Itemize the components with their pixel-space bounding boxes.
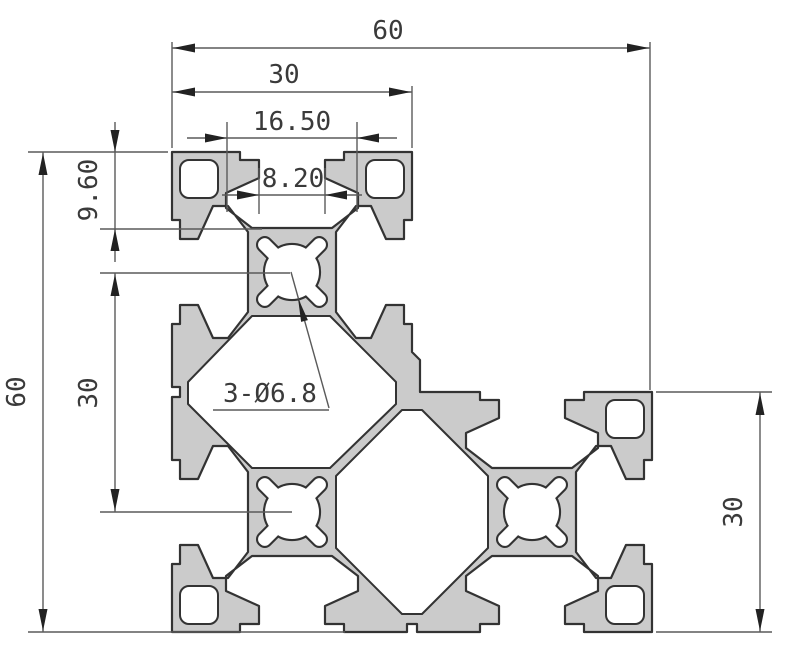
- dim-label-slot-depth: 9.60: [74, 159, 104, 222]
- dim-label-slot-cavity-width: 16.50: [253, 107, 331, 137]
- dim-label-overall-width: 60: [372, 16, 403, 46]
- dim-label-slot-opening-width: 8.20: [262, 164, 325, 194]
- corner-hole: [180, 160, 218, 198]
- dim-label-module-height-right: 30: [719, 496, 749, 527]
- center-bore-top: [256, 236, 329, 309]
- dim-module-height-right: 30: [656, 392, 772, 632]
- corner-hole: [366, 160, 404, 198]
- dim-label-module-width: 30: [268, 60, 299, 90]
- dim-label-hole-callout: 3-Ø6.8: [223, 379, 317, 409]
- dim-slot-depth: 9.60: [74, 122, 262, 262]
- dim-label-overall-height: 60: [2, 376, 32, 407]
- corner-hole: [606, 586, 644, 624]
- corner-hole: [180, 586, 218, 624]
- corner-hole: [606, 400, 644, 438]
- dim-label-module-pitch: 30: [74, 377, 104, 408]
- technical-drawing-page: 60 30 16.50 8.20 60: [0, 0, 802, 656]
- profile-drawing-canvas: 60 30 16.50 8.20 60: [0, 0, 802, 656]
- center-bore-bottom-right: [496, 476, 569, 549]
